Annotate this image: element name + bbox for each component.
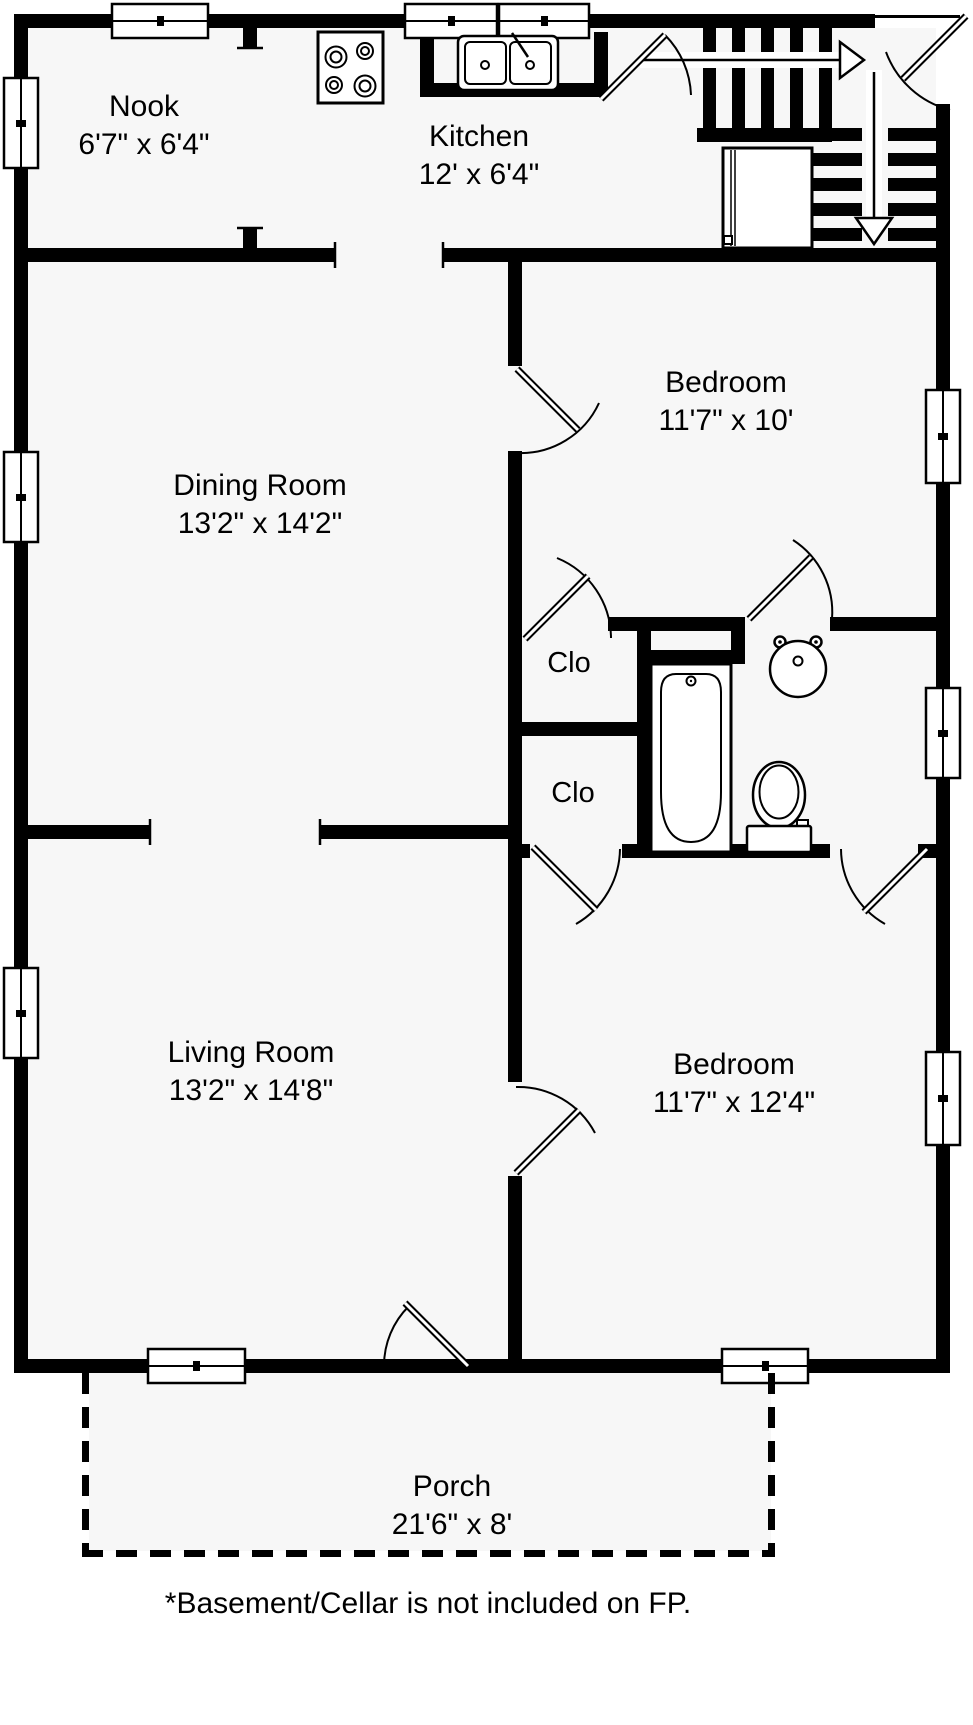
floorplan-drawing (0, 0, 973, 1725)
room-name: Kitchen (419, 118, 540, 156)
window (4, 78, 38, 168)
room-name: Bedroom (659, 364, 794, 402)
footnote: *Basement/Cellar is not included on FP. (165, 1587, 691, 1621)
room-dims: 21'6" x 8' (392, 1506, 513, 1544)
room-label-nook: Nook 6'7" x 6'4" (78, 88, 209, 164)
window (4, 968, 38, 1058)
room-dims: 6'7" x 6'4" (78, 126, 209, 164)
closet-label-2: Clo (551, 776, 595, 810)
room-label-kitchen: Kitchen 12' x 6'4" (419, 118, 540, 194)
room-label-bedroom-2: Bedroom 11'7" x 12'4" (653, 1046, 815, 1122)
room-dims: 12' x 6'4" (419, 156, 540, 194)
window (926, 1052, 960, 1145)
closet-label-1: Clo (547, 646, 591, 680)
refrigerator (723, 148, 812, 248)
room-name: Dining Room (173, 467, 346, 505)
room-label-bedroom-1: Bedroom 11'7" x 10' (659, 364, 794, 440)
room-name: Nook (78, 88, 209, 126)
room-label-living-room: Living Room 13'2" x 14'8" (168, 1034, 335, 1110)
pedestal-sink (770, 637, 826, 698)
window (148, 1349, 245, 1383)
room-name: Bedroom (653, 1046, 815, 1084)
window (926, 390, 960, 483)
room-name: Living Room (168, 1034, 335, 1072)
floorplan-page: Nook 6'7" x 6'4" Kitchen 12' x 6'4" Dini… (0, 0, 973, 1725)
window (112, 4, 208, 38)
kitchen-sink (458, 33, 558, 90)
room-dims: 13'2" x 14'2" (173, 505, 346, 543)
toilet (747, 762, 811, 852)
room-dims: 11'7" x 10' (659, 402, 794, 440)
room-dims: 13'2" x 14'8" (168, 1072, 335, 1110)
window (722, 1349, 808, 1383)
window (405, 4, 497, 38)
room-name: Porch (392, 1468, 513, 1506)
window (926, 688, 960, 778)
room-label-porch: Porch 21'6" x 8' (392, 1468, 513, 1544)
room-dims: 11'7" x 12'4" (653, 1084, 815, 1122)
window (4, 452, 38, 542)
bathtub (651, 664, 731, 852)
room-label-dining-room: Dining Room 13'2" x 14'2" (173, 467, 346, 543)
stove (318, 32, 383, 103)
